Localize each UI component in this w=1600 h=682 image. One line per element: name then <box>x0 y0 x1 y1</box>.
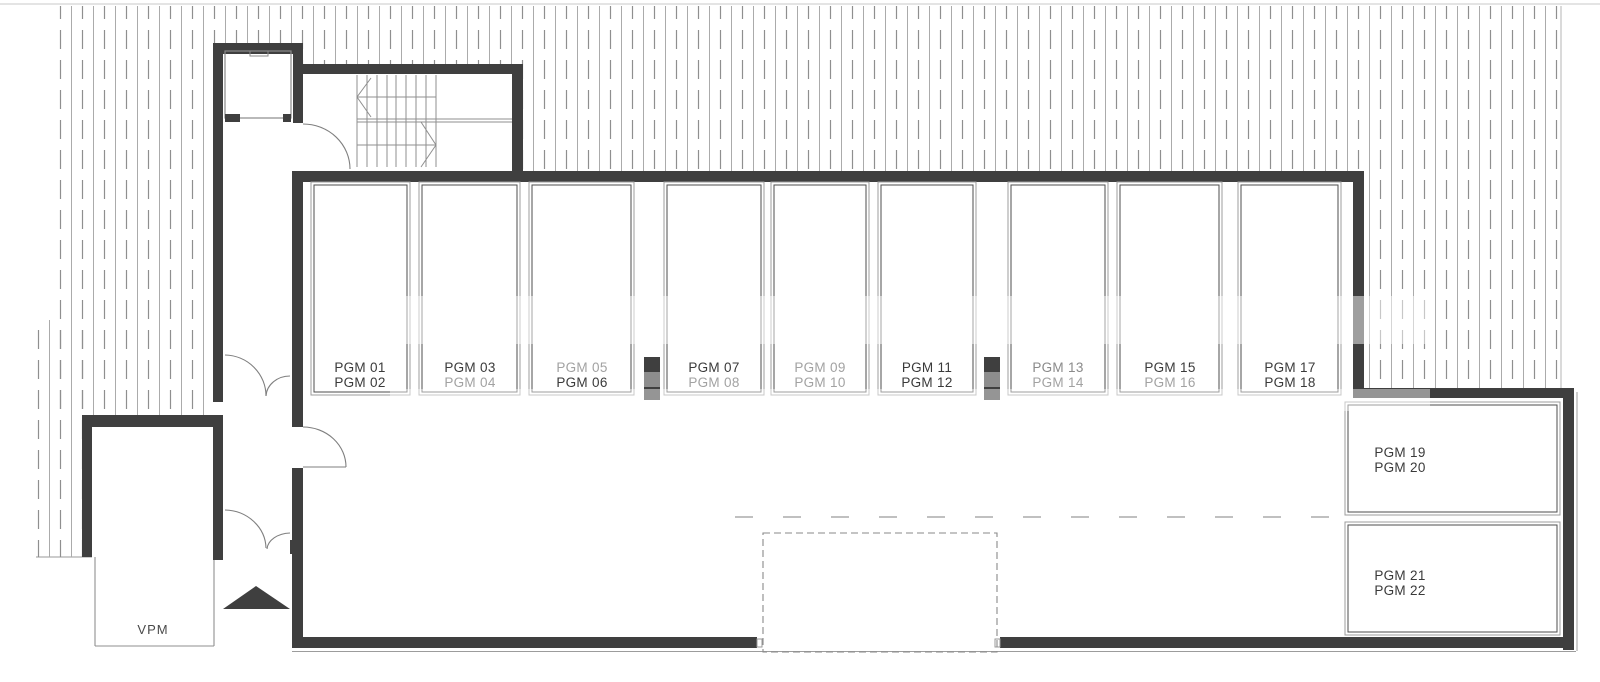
stall-label: PGM 15 <box>1144 360 1195 375</box>
vpm-wall-top <box>82 415 223 427</box>
parking-stall: PGM 13 PGM 14 <box>1008 182 1108 395</box>
garage-wall-bottom-right <box>1000 637 1574 648</box>
floor-plan-drawing: VPM PGM 01 PGM 02 PGM 03 PGM 04 PGM 05 P… <box>0 0 1600 682</box>
vpm-room: VPM <box>82 415 223 646</box>
door-jamb-block <box>290 540 303 554</box>
stall-label: PGM 03 <box>444 360 495 375</box>
parking-stall: PGM 05 PGM 06 <box>529 182 634 395</box>
stall-label: PGM 18 <box>1264 375 1315 390</box>
stall-label: PGM 10 <box>794 375 845 390</box>
stair-door-swing-arc <box>303 124 350 169</box>
stall-label: PGM 07 <box>688 360 739 375</box>
stair-wall-right <box>512 64 523 176</box>
vpm-wall-right <box>213 427 223 560</box>
parking-stall: PGM 03 PGM 04 <box>419 182 520 395</box>
ramp-dashed-outline <box>763 533 997 652</box>
garage-wall-top <box>292 171 1364 182</box>
garage-wall-right-outer <box>1563 388 1574 650</box>
stairwell <box>296 64 523 176</box>
parking-stall: PGM 17 PGM 18 <box>1238 182 1341 395</box>
parking-stall: PGM 21 PGM 22 <box>1345 522 1560 635</box>
stall-label: PGM 08 <box>688 375 739 390</box>
watermark-band <box>390 296 1430 411</box>
hatch-above-elevator <box>213 6 303 43</box>
parking-stalls-right: PGM 19 PGM 20 PGM 21 PGM 22 <box>1345 402 1560 635</box>
stall-label: PGM 21 <box>1374 568 1425 583</box>
corridor-wall-left <box>213 43 223 402</box>
stall-label: PGM 11 <box>902 360 952 375</box>
stall-label: PGM 05 <box>556 360 607 375</box>
hatch-top-band <box>523 6 1561 171</box>
stall-label: PGM 12 <box>901 375 952 390</box>
stair-treads <box>357 75 512 167</box>
elevator-door-jamb-left <box>225 114 240 122</box>
parking-stall: PGM 01 PGM 02 <box>311 182 410 395</box>
stall-label: PGM 06 <box>556 375 607 390</box>
parking-stall: PGM 15 PGM 16 <box>1117 182 1222 395</box>
stall-label: PGM 22 <box>1374 583 1425 598</box>
stall-label: PGM 09 <box>794 360 845 375</box>
stall-label: PGM 20 <box>1374 460 1425 475</box>
door-swing-arc <box>225 510 266 548</box>
stair-wall-top <box>296 64 523 74</box>
stall-label: PGM 19 <box>1374 445 1425 460</box>
garage-wall-left-lower <box>292 468 303 648</box>
parking-stalls-row: PGM 01 PGM 02 PGM 03 PGM 04 PGM 05 PGM 0… <box>311 182 1341 395</box>
elevator-wall-right <box>293 43 303 123</box>
hatch-above-stairs <box>303 6 523 64</box>
entrance-arrow-icon <box>223 586 290 609</box>
hatch-right-notch <box>1364 171 1561 388</box>
vpm-room-label: VPM <box>137 622 168 637</box>
parking-stall: PGM 07 PGM 08 <box>664 182 764 395</box>
garage-wall-bottom-left <box>292 637 757 648</box>
garage-wall-left-upper <box>292 171 303 427</box>
door-swing-arc <box>225 355 266 396</box>
site-hatch-area <box>36 6 1561 557</box>
elevator-wall-top <box>213 43 303 54</box>
stall-label: PGM 16 <box>1144 375 1195 390</box>
stall-label: PGM 17 <box>1264 360 1315 375</box>
stall-label: PGM 01 <box>334 360 385 375</box>
door-swing-arc <box>267 533 290 549</box>
entrance-doors <box>225 355 346 549</box>
stall-label: PGM 02 <box>334 375 385 390</box>
parking-stall: PGM 09 PGM 10 <box>771 182 869 395</box>
elevator-car-outline <box>225 51 291 118</box>
stall-label: PGM 13 <box>1032 360 1083 375</box>
vpm-wall-left <box>82 415 92 557</box>
elevator-door-jamb-right <box>283 114 291 122</box>
stall-label: PGM 14 <box>1032 375 1084 390</box>
elevator <box>213 43 303 123</box>
door-swing-arc <box>266 376 290 396</box>
ramp-opening-jambs <box>757 639 1000 647</box>
floor-plan-canvas: VPM PGM 01 PGM 02 PGM 03 PGM 04 PGM 05 P… <box>0 0 1600 682</box>
garage-wall-right-upper <box>1353 171 1364 398</box>
door-swing-arc <box>303 427 346 467</box>
parking-stall: PGM 11 PGM 12 <box>878 182 976 395</box>
parking-stall: PGM 19 PGM 20 <box>1345 402 1560 515</box>
stall-label: PGM 04 <box>444 375 496 390</box>
